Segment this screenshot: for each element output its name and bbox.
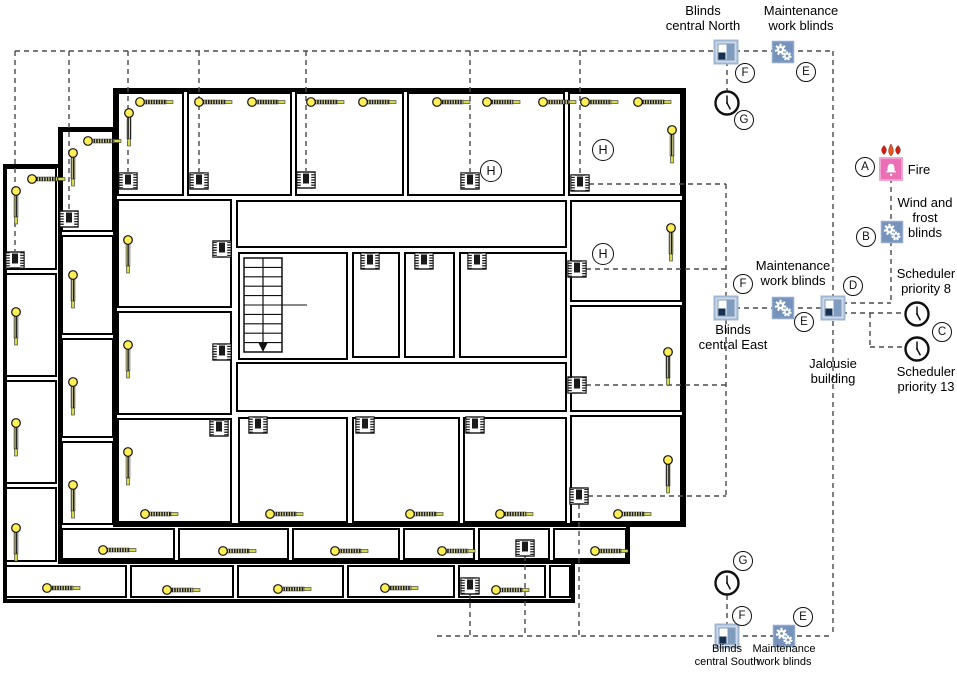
room bbox=[404, 252, 455, 358]
badge-D: D bbox=[843, 276, 863, 296]
label-blinds-central-north-line: central North bbox=[666, 18, 740, 33]
room bbox=[478, 528, 550, 560]
room bbox=[61, 130, 114, 232]
badge-F: F bbox=[733, 274, 753, 294]
room bbox=[570, 200, 682, 302]
label-blinds-central-south: Blindscentral South bbox=[695, 643, 760, 669]
label-scheduler-priority-8-line: Scheduler bbox=[897, 266, 956, 281]
label-maintenance-work-blinds-north-line: Maintenance bbox=[764, 3, 838, 18]
room bbox=[187, 92, 292, 196]
room bbox=[236, 200, 567, 248]
label-jalousie-building: Jalousiebuilding bbox=[809, 356, 857, 386]
scheduler-priority-8-icon bbox=[906, 303, 929, 326]
blinds-central-north-icon bbox=[715, 41, 738, 64]
badge-F: F bbox=[735, 63, 755, 83]
room bbox=[352, 417, 460, 523]
badge-H: H bbox=[592, 139, 614, 161]
room bbox=[295, 92, 404, 196]
blinds-building-automation-diagram: ABCDEFGFEGFEHHHBlindscentral NorthMainte… bbox=[0, 0, 957, 673]
room bbox=[5, 487, 57, 562]
scheduler-priority-13-icon bbox=[906, 338, 929, 361]
label-scheduler-priority-13-line: priority 13 bbox=[897, 379, 956, 394]
label-maintenance-work-blinds-south-line: work blinds bbox=[753, 656, 816, 669]
label-scheduler-priority-13: Schedulerpriority 13 bbox=[897, 364, 956, 394]
room bbox=[347, 565, 455, 598]
room bbox=[5, 565, 127, 598]
room bbox=[236, 362, 567, 412]
badge-E: E bbox=[793, 607, 813, 627]
label-blinds-central-east-line: Blinds bbox=[699, 322, 768, 337]
maintenance-work-blinds-north-icon bbox=[773, 42, 794, 63]
label-maintenance-work-blinds-east: Maintenancework blinds bbox=[756, 258, 830, 288]
badge-G: G bbox=[733, 551, 753, 571]
room bbox=[5, 273, 57, 377]
label-maintenance-work-blinds-south: Maintenancework blinds bbox=[753, 643, 816, 669]
room bbox=[61, 441, 114, 525]
room bbox=[178, 528, 289, 560]
label-scheduler-priority-8-line: priority 8 bbox=[897, 281, 956, 296]
room bbox=[61, 338, 114, 438]
room bbox=[238, 252, 348, 360]
badge-H: H bbox=[480, 160, 502, 182]
badge-A: A bbox=[855, 157, 875, 177]
room bbox=[61, 235, 114, 335]
room bbox=[117, 311, 232, 415]
label-wind-and-frost-blinds-line: blinds bbox=[898, 225, 953, 240]
room bbox=[5, 380, 57, 484]
label-maintenance-work-blinds-north: Maintenancework blinds bbox=[764, 3, 838, 33]
label-scheduler-priority-13-line: Scheduler bbox=[897, 364, 956, 379]
label-blinds-central-south-line: Blinds bbox=[695, 643, 760, 656]
room bbox=[570, 415, 682, 523]
badge-B: B bbox=[856, 227, 876, 247]
scheduler-north-icon bbox=[716, 92, 739, 115]
room bbox=[403, 528, 475, 560]
room bbox=[352, 252, 400, 358]
badge-E: E bbox=[794, 312, 814, 332]
room bbox=[553, 528, 627, 560]
label-scheduler-priority-8: Schedulerpriority 8 bbox=[897, 266, 956, 296]
badge-C: C bbox=[932, 322, 952, 342]
label-jalousie-building-line: building bbox=[809, 371, 857, 386]
jalousie-building-icon bbox=[822, 297, 845, 320]
label-maintenance-work-blinds-east-line: work blinds bbox=[756, 273, 830, 288]
label-blinds-central-east-line: central East bbox=[699, 337, 768, 352]
fire-icon bbox=[880, 158, 902, 180]
label-blinds-central-south-line: central South bbox=[695, 656, 760, 669]
badge-F: F bbox=[732, 606, 752, 626]
label-wind-and-frost-blinds: Wind andfrostblinds bbox=[898, 195, 953, 240]
maintenance-work-blinds-east-icon bbox=[773, 298, 794, 319]
room bbox=[130, 565, 234, 598]
room bbox=[5, 167, 57, 270]
room bbox=[459, 252, 567, 358]
room bbox=[458, 565, 546, 598]
room bbox=[61, 528, 175, 560]
label-jalousie-building-line: Jalousie bbox=[809, 356, 857, 371]
label-wind-and-frost-blinds-line: frost bbox=[898, 210, 953, 225]
label-maintenance-work-blinds-north-line: work blinds bbox=[764, 18, 838, 33]
label-wind-and-frost-blinds-line: Wind and bbox=[898, 195, 953, 210]
badge-G: G bbox=[734, 110, 754, 130]
label-fire-line: Fire bbox=[908, 162, 930, 177]
label-maintenance-work-blinds-south-line: Maintenance bbox=[753, 643, 816, 656]
room bbox=[570, 305, 682, 412]
scheduler-south-icon bbox=[716, 572, 739, 595]
badge-H: H bbox=[592, 243, 614, 265]
label-fire: Fire bbox=[908, 162, 930, 177]
room bbox=[238, 417, 348, 523]
room bbox=[117, 418, 232, 523]
label-blinds-central-north-line: Blinds bbox=[666, 3, 740, 18]
room bbox=[237, 565, 344, 598]
label-blinds-central-north: Blindscentral North bbox=[666, 3, 740, 33]
flames-icon bbox=[882, 144, 901, 156]
room bbox=[568, 92, 682, 196]
blinds-central-east-icon bbox=[715, 297, 738, 320]
label-blinds-central-east: Blindscentral East bbox=[699, 322, 768, 352]
room bbox=[117, 199, 232, 308]
room bbox=[292, 528, 400, 560]
room bbox=[549, 565, 571, 598]
room bbox=[463, 417, 567, 523]
room bbox=[117, 92, 184, 196]
label-maintenance-work-blinds-east-line: Maintenance bbox=[756, 258, 830, 273]
badge-E: E bbox=[796, 62, 816, 82]
